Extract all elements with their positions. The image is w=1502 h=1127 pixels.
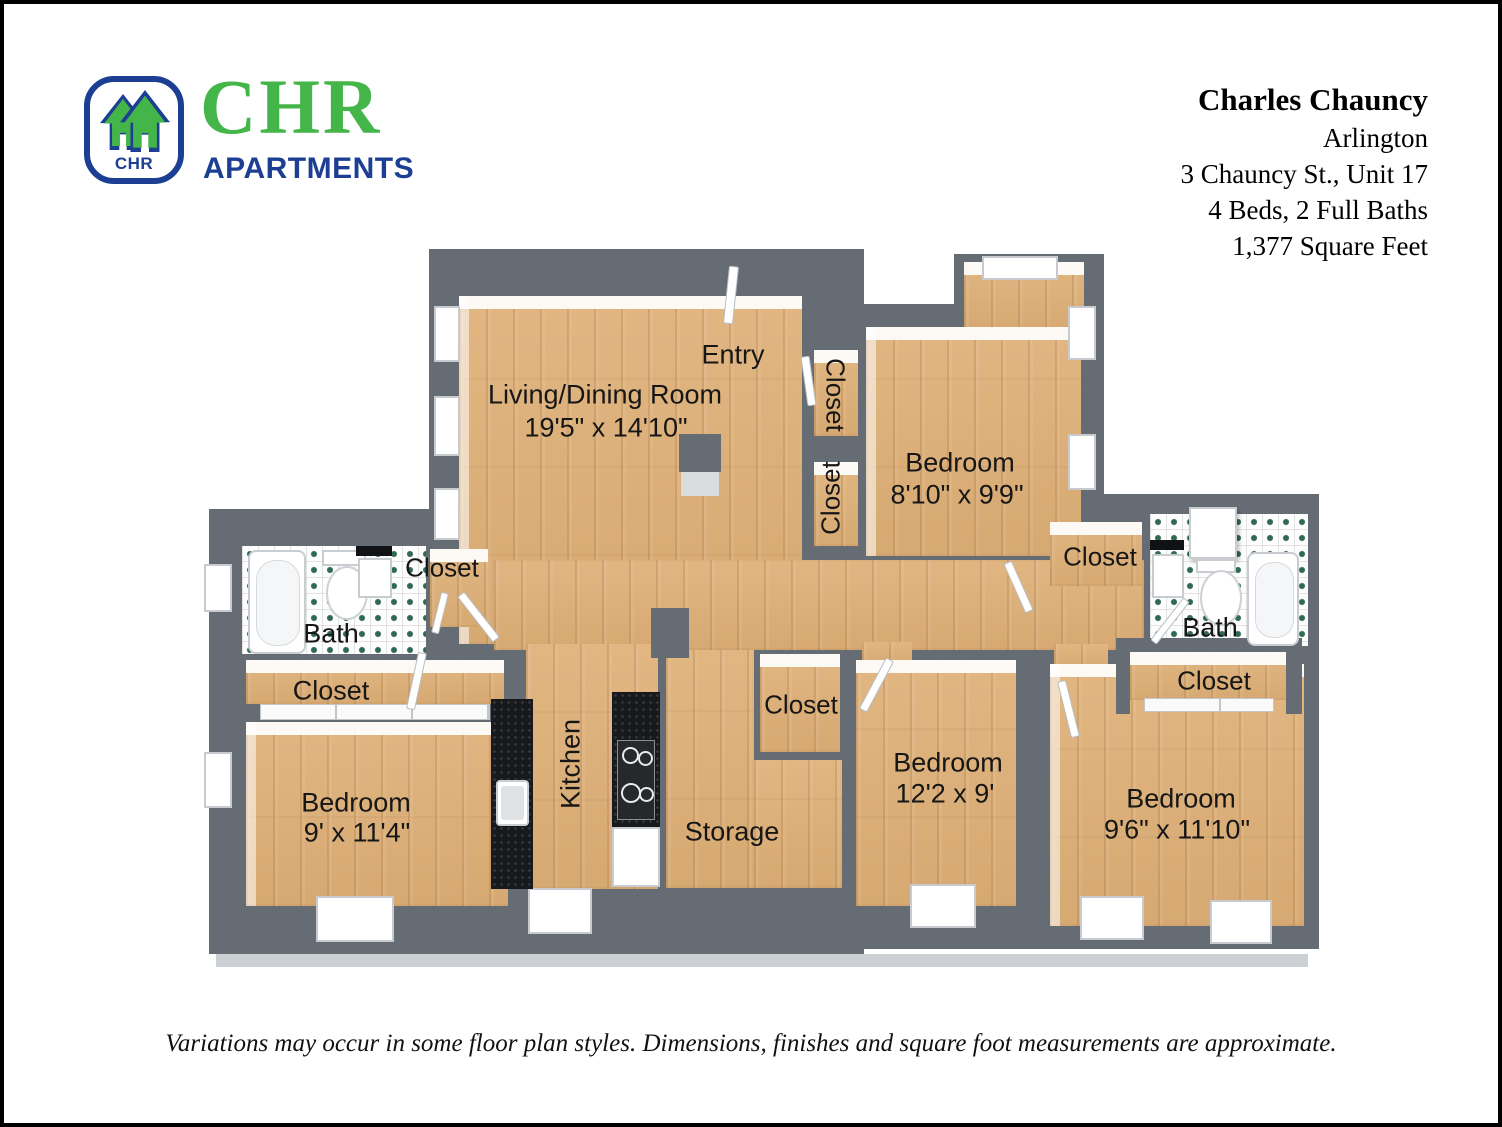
window [204,564,232,612]
stove [617,740,655,820]
bedroom-middle-label: Bedroom [893,748,1003,779]
wall-pillar-hall [651,608,689,658]
window [1210,900,1272,944]
sink-left [358,558,392,598]
living-room-label: Living/Dining Room [488,380,722,411]
towel-bar-left [356,546,392,556]
closet-right-label: Closet [1177,666,1251,697]
kitchen-sink-basin [501,786,524,820]
bedroom-bottomright-label: Bedroom [1126,784,1236,815]
closet-entry-top-label: Closet [820,358,851,432]
closet-middle-label: Closet [764,690,838,721]
living-room-column-base [681,472,719,496]
window [528,888,592,934]
floorplan-page: CHR CHR APARTMENTS Charles Chauncy Arlin… [0,0,1502,1127]
towel-bar-right [1150,540,1184,550]
window [316,896,394,942]
kitchen-cabinet [612,827,660,887]
storage-floor-upper [666,650,754,888]
bedroom-topright-floor [866,327,1081,556]
entry-label: Entry [701,340,764,371]
living-room-dims: 19'5" x 14'10" [524,413,687,444]
closet-entry-bottom-label: Closet [816,461,847,535]
bedroom-bottomleft-label: Bedroom [301,788,411,819]
closet-right-wall-right [1286,652,1302,714]
closet-right-top-label: Closet [1063,542,1137,573]
closet-left-label: Closet [293,676,370,707]
hallway-floor [494,560,1144,650]
bath-left-label: Bath [303,619,359,650]
window [910,884,976,928]
window [1068,306,1096,360]
window [434,488,460,540]
closet-bath-left-label: Closet [405,553,479,584]
bedroom-bottomleft-dims: 9' x 11'4" [304,818,410,849]
window [434,306,460,362]
bedroom-middle-dims: 12'2 x 9' [896,779,995,810]
storage-label: Storage [685,817,780,848]
window [1068,434,1096,490]
window [434,396,460,456]
bedroom-topright-dims: 8'10" x 9'9" [890,480,1023,511]
closet-right-sliding-doors [1144,698,1274,712]
sink-right [1152,554,1184,598]
bathtub-right-basin [1255,562,1294,638]
disclaimer-text: Variations may occur in some floor plan … [4,1030,1498,1058]
vanity-right [1189,507,1237,559]
kitchen-label: Kitchen [556,719,587,809]
closet-right-wall-left [1116,652,1130,714]
window [1080,896,1144,940]
wall-drop-shadow [216,954,1308,967]
floorplan: Entry Living/Dining Room 19'5" x 14'10" … [4,4,1502,1127]
bath-right-label: Bath [1182,613,1238,644]
bathtub-left-basin [256,560,300,646]
window [982,256,1058,280]
window [204,752,232,808]
closet-left-floor [246,660,504,704]
bedroom-topright-label: Bedroom [905,448,1015,479]
bedroom-bottomright-dims: 9'6" x 11'10" [1104,815,1250,846]
